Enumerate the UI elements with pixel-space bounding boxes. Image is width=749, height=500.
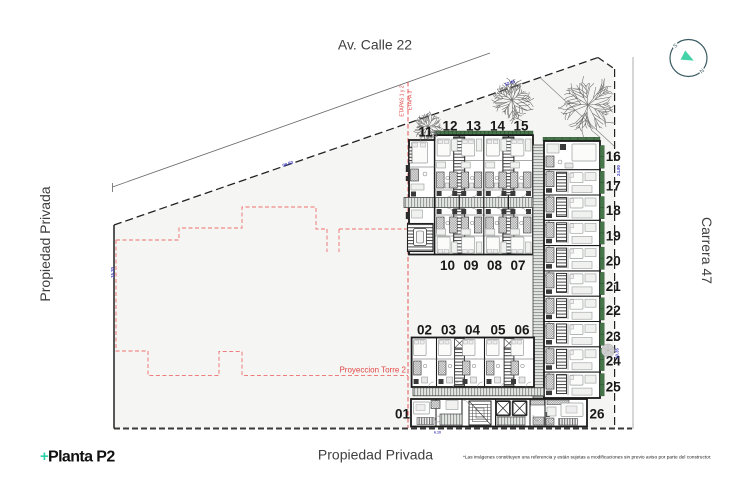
svg-text:05: 05	[490, 323, 506, 338]
svg-text:N: N	[699, 68, 706, 75]
svg-text:02: 02	[417, 323, 432, 338]
svg-text:26: 26	[589, 407, 605, 422]
svg-text:S: S	[672, 43, 679, 50]
svg-text:10: 10	[440, 258, 455, 273]
svg-text:Planta P2: Planta P2	[48, 449, 115, 466]
svg-text:Propiedad Privada: Propiedad Privada	[318, 447, 433, 463]
svg-text:24.80: 24.80	[616, 164, 621, 176]
svg-text:10.35: 10.35	[615, 347, 620, 359]
svg-text:23: 23	[606, 329, 622, 344]
svg-text:22: 22	[606, 303, 621, 318]
svg-text:12: 12	[442, 119, 457, 134]
svg-text:Propiedad Privada: Propiedad Privada	[37, 186, 53, 301]
svg-text:25: 25	[606, 380, 622, 395]
svg-text:20: 20	[606, 254, 621, 269]
svg-text:6.10: 6.10	[434, 431, 441, 435]
svg-text:01: 01	[395, 407, 411, 422]
svg-text:Carrera 47: Carrera 47	[699, 217, 715, 284]
svg-text:*Las imágenes constituyen una: *Las imágenes constituyen una referencia…	[463, 455, 712, 461]
svg-text:03: 03	[441, 323, 457, 338]
svg-text:06: 06	[514, 323, 530, 338]
svg-text:08: 08	[487, 258, 503, 273]
svg-text:04: 04	[465, 323, 481, 338]
svg-text:11: 11	[418, 125, 433, 140]
svg-text:17: 17	[606, 179, 621, 194]
svg-text:ETAPAS 1 y 2: ETAPAS 1 y 2	[400, 85, 406, 116]
svg-text:15: 15	[513, 119, 529, 134]
svg-text:Proyeccion Torre 2: Proyeccion Torre 2	[339, 366, 406, 375]
svg-text:07: 07	[510, 258, 525, 273]
svg-text:16: 16	[606, 149, 622, 164]
svg-text:18: 18	[606, 203, 622, 218]
svg-text:15.20: 15.20	[110, 266, 115, 278]
svg-text:Av. Calle 22: Av. Calle 22	[338, 37, 412, 53]
svg-text:14: 14	[490, 119, 506, 134]
svg-text:13: 13	[466, 119, 482, 134]
svg-text:19: 19	[606, 229, 621, 244]
svg-text:09: 09	[463, 258, 478, 273]
svg-text:21: 21	[606, 279, 622, 294]
svg-text:ETAPA 3: ETAPA 3	[408, 91, 414, 111]
